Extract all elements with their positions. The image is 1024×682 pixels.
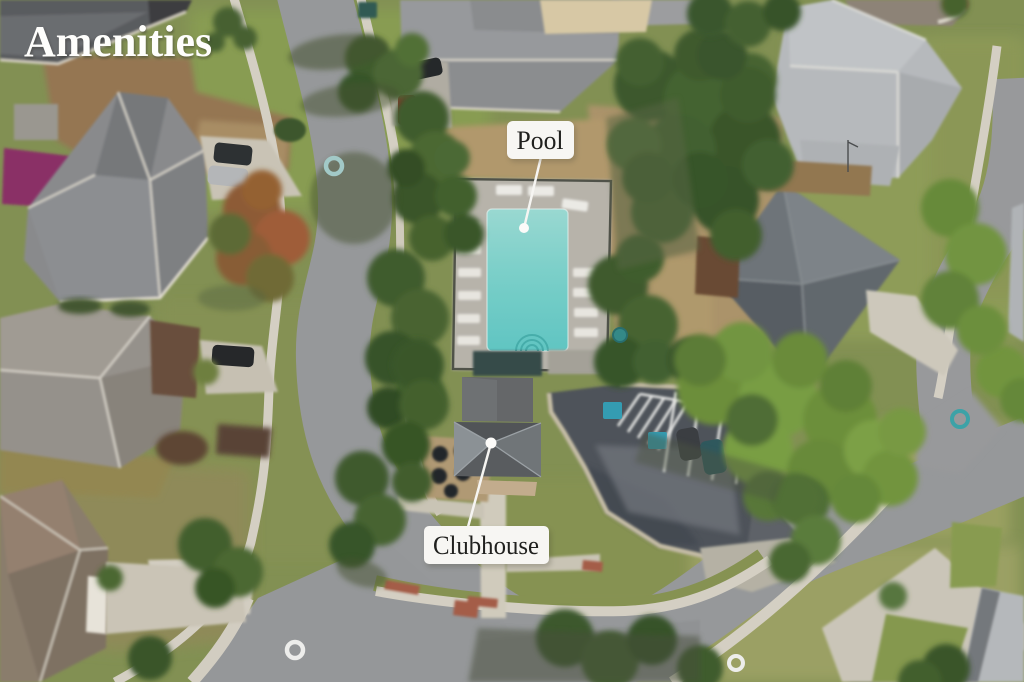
svg-text:Pool: Pool xyxy=(517,126,564,155)
svg-text:Amenities: Amenities xyxy=(24,17,212,66)
svg-text:Clubhouse: Clubhouse xyxy=(433,531,539,560)
